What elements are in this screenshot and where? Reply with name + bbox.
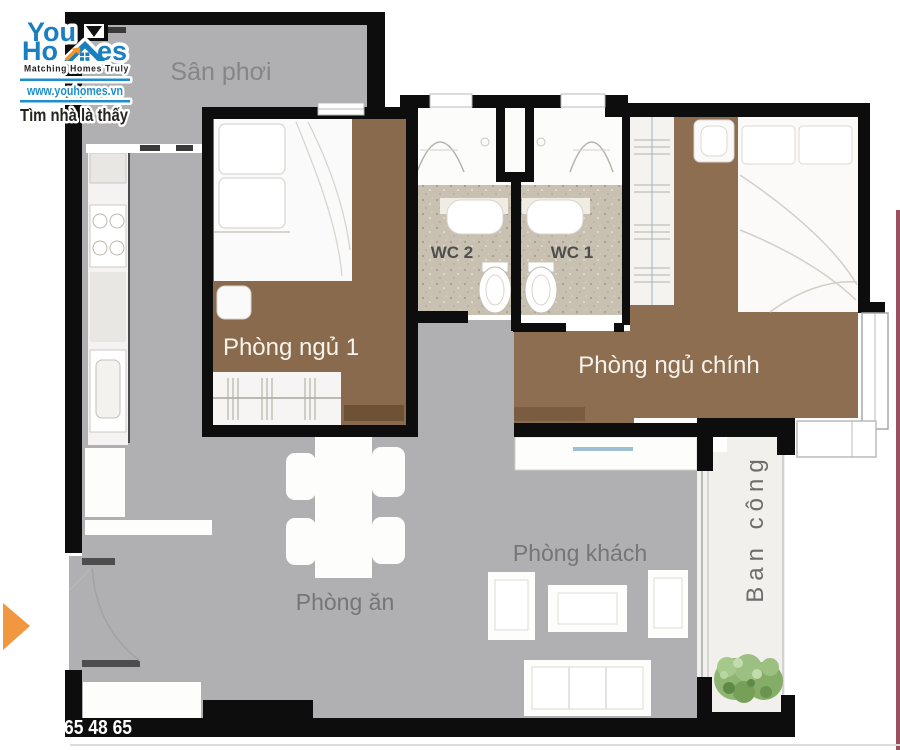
svg-text:es: es <box>97 36 127 66</box>
svg-text:www.youhomes.vn: www.youhomes.vn <box>26 83 123 98</box>
svg-text:Ho: Ho <box>22 36 58 66</box>
svg-text:Ban công: Ban công <box>742 453 769 602</box>
svg-text:WC 2: WC 2 <box>431 243 474 262</box>
svg-text:Tìm nhà là thấy: Tìm nhà là thấy <box>20 105 128 125</box>
svg-text:Phòng ăn: Phòng ăn <box>296 589 394 615</box>
svg-text:Sân phơi: Sân phơi <box>170 58 271 86</box>
svg-text:Matching Homes Truly: Matching Homes Truly <box>24 64 129 74</box>
svg-text:65 48 65: 65 48 65 <box>64 717 132 739</box>
svg-text:Phòng khách: Phòng khách <box>513 540 647 566</box>
svg-text:Phòng ngủ 1: Phòng ngủ 1 <box>223 334 359 361</box>
svg-text:WC 1: WC 1 <box>551 243 594 262</box>
svg-text:Phòng ngủ chính: Phòng ngủ chính <box>578 352 760 379</box>
